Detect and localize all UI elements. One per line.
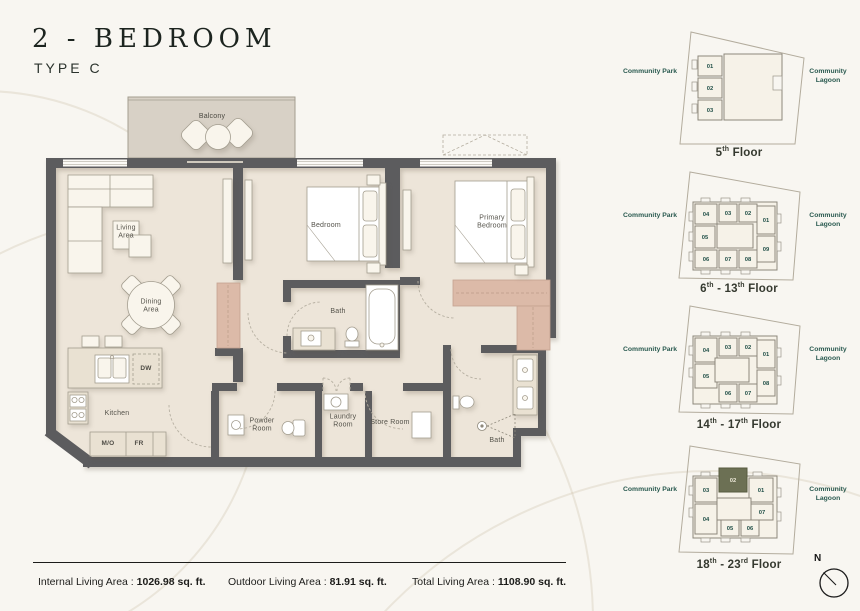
unit-number: 03 — [725, 345, 732, 351]
floor-label-6-13: 6th - 13th Floor — [622, 282, 856, 295]
community-park-label: Community Park — [622, 346, 678, 355]
unit-number: 08 — [745, 257, 752, 263]
room-label-dining: Dining Area — [133, 299, 169, 316]
unit-number: 06 — [725, 391, 732, 397]
brochure-page: 2 - BEDROOM TYPE C — [0, 0, 860, 611]
floor-plan: Balcony Living Area Dining Area Kitchen … — [35, 95, 561, 507]
compass-north-label: N — [814, 553, 821, 564]
unit-number: 04 — [703, 212, 710, 218]
unit-number: 05 — [727, 526, 734, 532]
room-label-bedroom: Bedroom — [311, 222, 341, 230]
unit-number: 09 — [763, 247, 770, 253]
room-label-bath: Bath — [330, 308, 345, 316]
floor-label-14-17: 14th - 17th Floor — [622, 418, 856, 431]
community-park-label: Community Park — [622, 68, 678, 77]
appliance-label-dishwasher: DW — [140, 365, 151, 373]
footer-divider — [33, 562, 566, 563]
unit-number: 07 — [745, 391, 751, 397]
unit-number: 03 — [707, 108, 714, 114]
unit-number: 06 — [703, 257, 710, 263]
unit-number: 02 — [745, 345, 751, 351]
room-label-laundry-room: Laundry Room — [320, 414, 366, 431]
floor-label-5: 5th Floor — [622, 146, 856, 159]
unit-number: 01 — [758, 488, 765, 494]
unit-number: 01 — [763, 352, 770, 358]
community-park-label: Community Park — [622, 212, 678, 221]
page-title: 2 - BEDROOM — [32, 24, 277, 54]
unit-number: 05 — [703, 374, 710, 380]
unit-number: 08 — [763, 381, 770, 387]
unit-number: 01 — [707, 64, 714, 70]
room-label-primary-bedroom: Primary Bedroom — [465, 215, 519, 232]
site-diagram-floor-14-17: 01 02 03 04 05 06 07 08 Community Park C… — [622, 302, 856, 440]
site-diagram-floor-5: 01 02 03 Community Park Community Lagoon… — [622, 16, 856, 168]
room-label-living: Living Area — [108, 225, 144, 242]
unit-number: 01 — [763, 218, 770, 224]
appliance-label-microwave-oven: M/O — [102, 440, 115, 448]
unit-number: 04 — [703, 517, 710, 523]
compass: N — [806, 552, 858, 604]
site-diagram-floor-6-13: 01 02 03 04 05 06 07 08 09 Community Par… — [622, 168, 856, 304]
unit-number: 06 — [747, 526, 754, 532]
room-label-ensuite-bath: Bath — [489, 437, 504, 445]
community-lagoon-label: Community Lagoon — [800, 68, 856, 86]
outdoor-living-area: Outdoor Living Area : 81.91 sq. ft. — [228, 576, 387, 588]
room-label-balcony: Balcony — [199, 113, 225, 121]
page-subtitle: TYPE C — [34, 60, 103, 76]
total-living-area: Total Living Area : 1108.90 sq. ft. — [412, 576, 566, 588]
unit-number: 05 — [702, 235, 709, 241]
appliance-label-fridge: FR — [134, 440, 143, 448]
room-label-kitchen: Kitchen — [105, 410, 130, 418]
unit-number: 03 — [703, 488, 710, 494]
community-lagoon-label: Community Lagoon — [800, 346, 856, 364]
internal-living-area: Internal Living Area : 1026.98 sq. ft. — [38, 576, 206, 588]
community-lagoon-label: Community Lagoon — [800, 212, 856, 230]
room-label-powder-room: Powder Room — [239, 418, 285, 435]
unit-number: 07 — [725, 257, 731, 263]
unit-number: 04 — [703, 348, 710, 354]
room-label-store-room: Store Room — [370, 419, 410, 427]
community-lagoon-label: Community Lagoon — [800, 486, 856, 504]
unit-number: 07 — [759, 510, 765, 516]
unit-number-highlighted: 02 — [730, 478, 736, 484]
unit-number: 02 — [745, 211, 751, 217]
unit-number: 02 — [707, 86, 713, 92]
unit-number: 03 — [725, 211, 732, 217]
community-park-label: Community Park — [622, 486, 678, 495]
